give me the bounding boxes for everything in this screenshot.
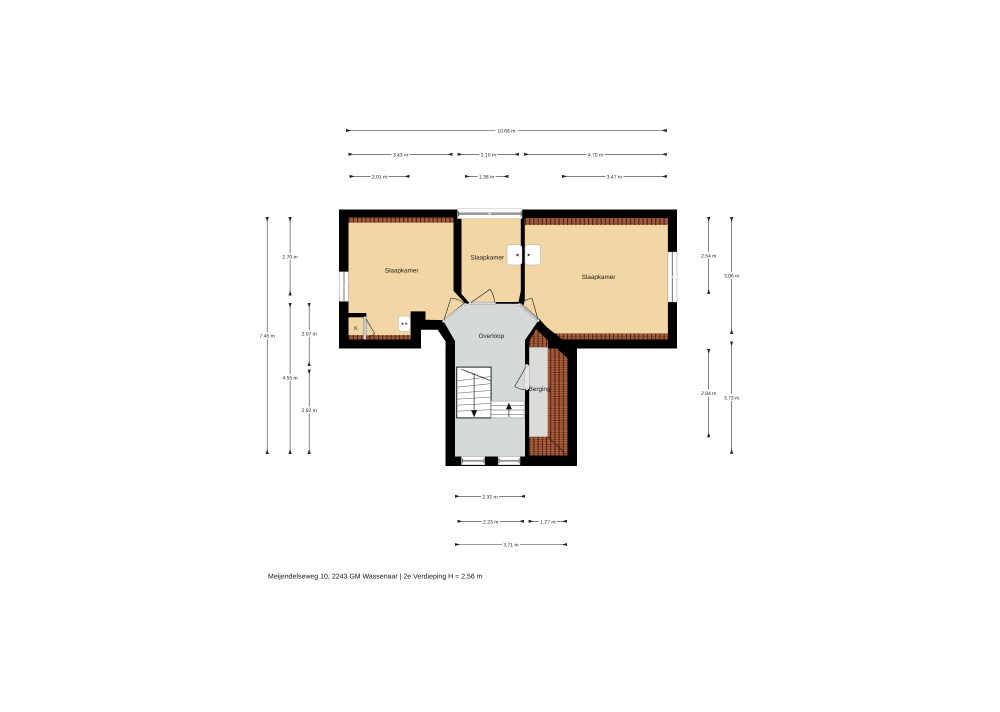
svg-text:2.01 m: 2.01 m [372, 175, 387, 181]
svg-text:10.66 m: 10.66 m [497, 129, 515, 135]
svg-text:K: K [354, 326, 358, 332]
svg-text:1.27 m: 1.27 m [540, 519, 555, 525]
svg-text:Slaapkamer: Slaapkamer [582, 274, 616, 281]
svg-text:3.43 m: 3.43 m [393, 152, 408, 158]
svg-text:3.71 m: 3.71 m [503, 543, 518, 549]
svg-text:2.07 m: 2.07 m [302, 332, 317, 338]
svg-text:2.92 m: 2.92 m [302, 408, 317, 414]
svg-text:2.10 m: 2.10 m [481, 152, 496, 158]
svg-text:2.70 m: 2.70 m [282, 254, 297, 260]
svg-text:2.84 m: 2.84 m [701, 391, 716, 397]
svg-text:Slaapkamer: Slaapkamer [470, 255, 504, 262]
svg-text:Overloop: Overloop [479, 333, 505, 340]
svg-text:Berging: Berging [529, 386, 551, 393]
svg-text:3.47 m: 3.47 m [607, 175, 622, 181]
svg-text:2.54 m: 2.54 m [701, 254, 716, 260]
svg-text:7.45 m: 7.45 m [260, 334, 275, 340]
svg-text:Meijendelseweg 10, 2243 GM Was: Meijendelseweg 10, 2243 GM Wassenaar | 2… [268, 573, 483, 581]
svg-text:1.38 m: 1.38 m [479, 175, 494, 181]
svg-text:2.32 m: 2.32 m [482, 494, 497, 500]
svg-text:Slaapkamer: Slaapkamer [385, 268, 419, 275]
svg-text:4.55 m: 4.55 m [282, 376, 297, 382]
svg-text:3.06 m: 3.06 m [724, 274, 739, 280]
svg-text:4.70 m: 4.70 m [588, 152, 603, 158]
svg-text:2.23 m: 2.23 m [483, 519, 498, 525]
svg-text:3.73 m: 3.73 m [724, 396, 739, 402]
